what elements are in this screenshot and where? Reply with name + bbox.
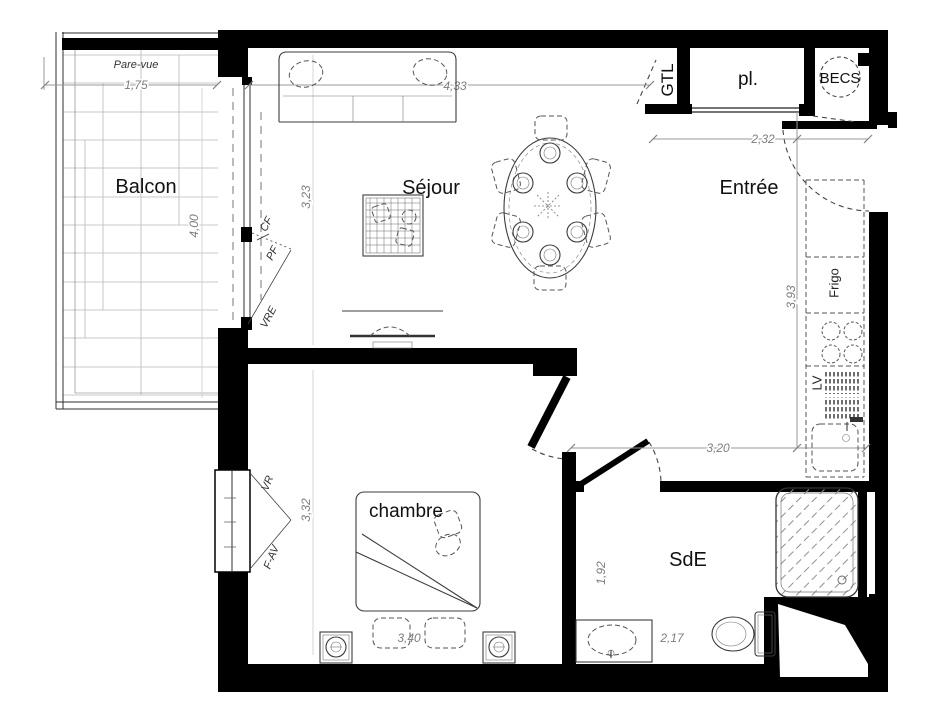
appliance-lv: LV <box>810 375 825 390</box>
wall-gtl-right <box>677 48 690 112</box>
wall-right-step <box>888 112 897 128</box>
dishwasher-hatch <box>824 371 860 394</box>
dimension-sejour-depth: 3,23 <box>299 185 313 209</box>
label-pare-vue: Pare-vue <box>114 59 159 71</box>
wall-becs-bottom <box>782 121 877 129</box>
wall-shower-side <box>858 487 867 598</box>
dimension-balcony-width: 1,75 <box>124 78 148 92</box>
wall-sejour-chambre <box>218 348 533 364</box>
room-label-gtl: GTL <box>658 63 677 96</box>
appliance-frigo: Frigo <box>827 268 842 298</box>
wall-column-topleft <box>218 30 248 77</box>
room-label-sde: SdE <box>669 549 707 571</box>
floor-plan: CF PF VRE VR F-AV <box>0 0 940 705</box>
wall-pl-end <box>799 104 815 116</box>
dimension-kitchen-span: 3,20 <box>706 441 730 455</box>
faucet <box>850 417 863 422</box>
room-label-chambre: chambre <box>369 501 443 522</box>
room-label-placard: pl. <box>738 69 758 90</box>
dimension-balcony-depth: 4,00 <box>187 214 201 238</box>
dimension-sde-width: 2,17 <box>659 631 685 645</box>
dimension-kitchen-length: 3,93 <box>784 285 798 309</box>
dimension-sejour-width: 4,33 <box>443 79 467 93</box>
shower <box>776 488 858 597</box>
dimension-chambre-depth: 3,32 <box>299 498 313 522</box>
wall-pare-vue <box>62 38 218 50</box>
room-label-balcon: Balcon <box>115 176 176 198</box>
wall-top <box>218 30 888 48</box>
dimension-entree-width: 2,32 <box>750 132 775 146</box>
room-label-becs: BECS <box>820 70 861 87</box>
wall-right-upper <box>869 30 888 125</box>
wall-becs-square <box>858 53 872 66</box>
room-label-sejour: Séjour <box>402 177 460 199</box>
wall-junction-column <box>533 348 577 376</box>
room-label-entree: Entrée <box>720 177 779 199</box>
wall-gtl-foot <box>645 104 692 114</box>
dimension-sde-depth: 1,92 <box>594 561 608 585</box>
duct-slot <box>869 492 875 594</box>
